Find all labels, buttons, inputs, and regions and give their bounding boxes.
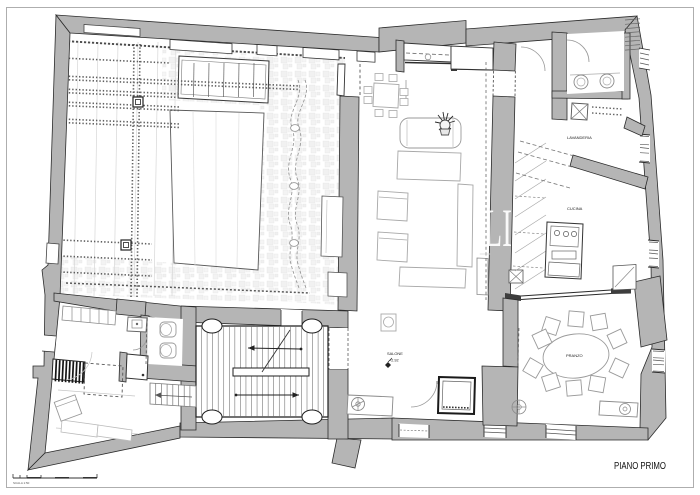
svg-text:LAVANDERIA: LAVANDERIA: [567, 135, 592, 140]
svg-text:+2.92: +2.92: [389, 359, 399, 363]
svg-text:SCALA 1:50: SCALA 1:50: [13, 481, 30, 485]
svg-text:PRANZO: PRANZO: [566, 353, 583, 358]
svg-text:CUCINA: CUCINA: [567, 206, 583, 211]
svg-text:PIANO PRIMO: PIANO PRIMO: [614, 460, 666, 472]
svg-text:_: _: [479, 235, 491, 257]
svg-text:SALONE: SALONE: [387, 351, 403, 356]
